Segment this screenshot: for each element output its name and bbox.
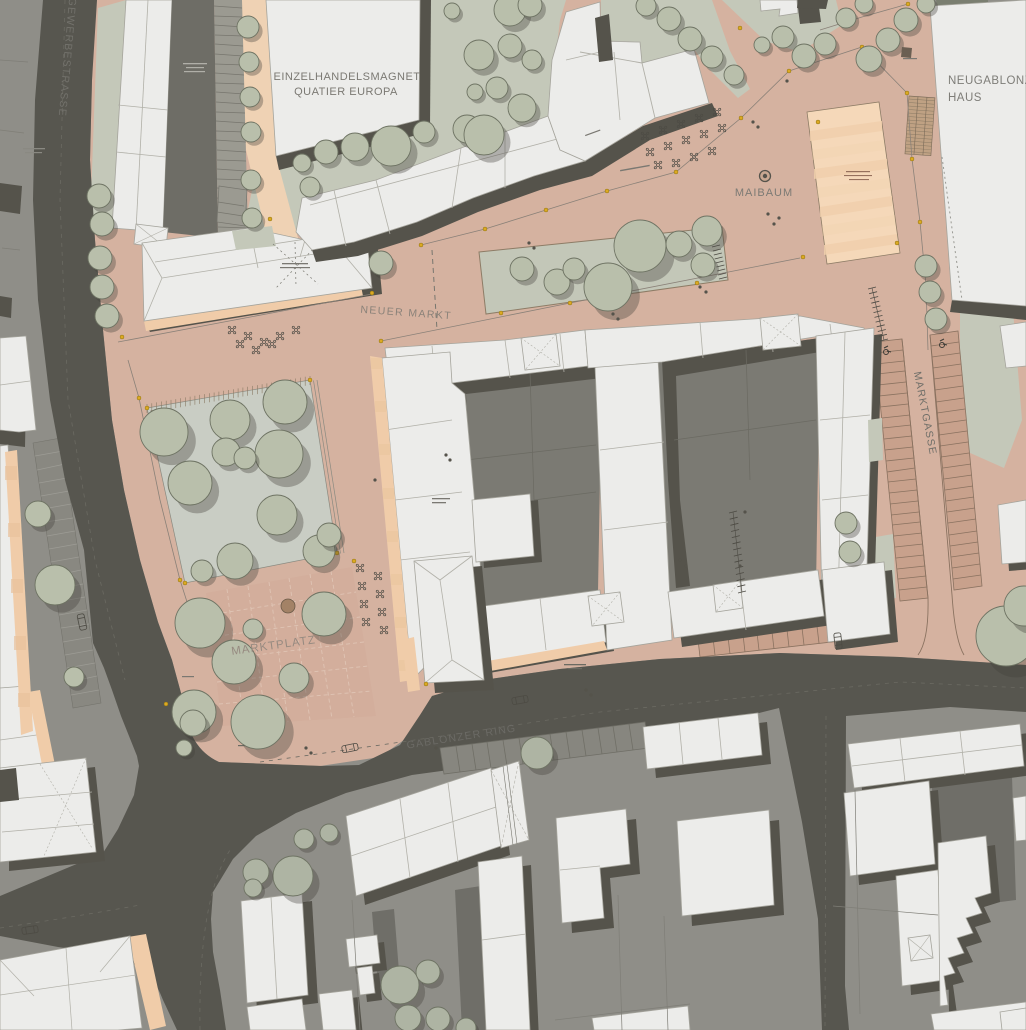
svg-text:HAUS: HAUS xyxy=(948,92,982,104)
svg-text:MAIBAUM: MAIBAUM xyxy=(735,187,793,199)
svg-text:EINZELHANDELSMAGNET: EINZELHANDELSMAGNET xyxy=(273,71,420,83)
svg-text:NEUGABLONZER: NEUGABLONZER xyxy=(948,75,1026,87)
svg-text:QUATIER EUROPA: QUATIER EUROPA xyxy=(294,86,398,98)
